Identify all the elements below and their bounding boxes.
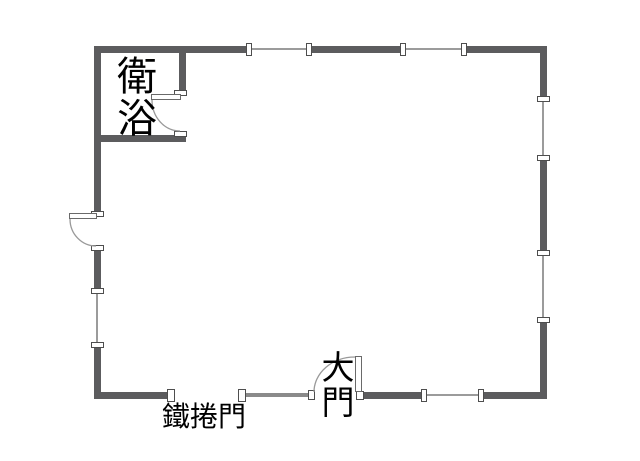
wall-top-segment-3: [464, 46, 547, 53]
wall-top-segment-2: [309, 46, 403, 53]
roller-door-label: 鐵捲門: [162, 395, 246, 435]
left-door-jamb-bottom: [91, 245, 104, 251]
bathroom-wall-right: [179, 46, 186, 93]
window-right-1-cap-top: [537, 96, 550, 102]
window-left-glass: [96, 294, 98, 342]
main-gate-hinge: [356, 391, 364, 400]
window-top-1-cap-right: [306, 43, 312, 56]
wall-bottom-thin-segment: [245, 393, 311, 397]
left-door-arc: [70, 219, 96, 246]
wall-right-segment-2: [540, 158, 547, 253]
window-left-cap-bottom: [91, 342, 104, 348]
wall-bottom-segment-1: [94, 392, 171, 399]
window-top-2-glass: [406, 48, 461, 50]
wall-left-segment-2: [94, 249, 101, 291]
window-top-1-glass: [252, 48, 306, 50]
wall-bottom-segment-2: [364, 392, 423, 399]
main-gate-label: 大門: [319, 350, 352, 420]
wall-top-segment-1: [94, 46, 249, 53]
bathroom-door-jamb-bottom: [174, 131, 187, 137]
window-right-1-glass: [542, 102, 544, 155]
wall-left-segment-3: [94, 345, 101, 399]
window-bottom-glass: [427, 394, 478, 396]
bathroom-door-arc: [152, 100, 180, 131]
main-gate-leaf: [355, 356, 362, 392]
left-door-leaf: [69, 213, 97, 219]
window-left-cap-top: [91, 288, 104, 294]
window-top-2-cap-right: [461, 43, 467, 56]
bathroom-label: 衛浴: [113, 55, 153, 139]
window-right-2-cap-top: [537, 250, 550, 256]
window-right-2-glass: [542, 256, 544, 317]
floor-plan: 衛浴 鐵捲門 大門: [0, 0, 640, 461]
wall-left-segment-1: [94, 46, 101, 214]
window-right-2-cap-bottom: [537, 317, 550, 323]
wall-right-segment-3: [540, 320, 547, 399]
wall-bottom-segment-3: [481, 392, 547, 399]
window-top-1-cap-left: [246, 43, 252, 56]
window-bottom-cap-left: [421, 389, 427, 402]
window-right-1-cap-bottom: [537, 155, 550, 161]
wall-right-segment-1: [540, 46, 547, 99]
main-gate-jamb-left: [308, 390, 315, 400]
window-top-2-cap-left: [400, 43, 406, 56]
window-bottom-cap-right: [478, 389, 484, 402]
